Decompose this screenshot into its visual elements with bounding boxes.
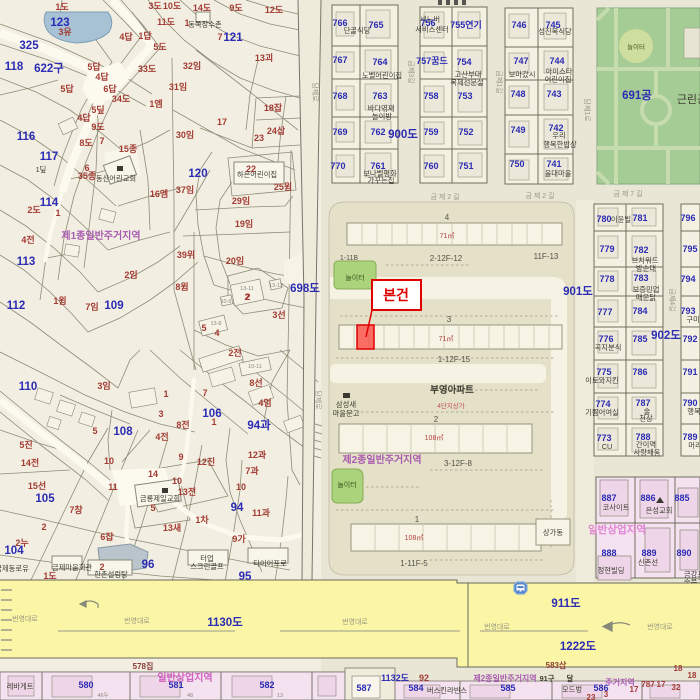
svg-text:108: 108 xyxy=(113,426,133,438)
svg-text:749: 749 xyxy=(510,125,525,135)
svg-text:5답: 5답 xyxy=(87,61,101,72)
svg-text:116: 116 xyxy=(17,131,36,143)
svg-text:587: 587 xyxy=(356,683,371,693)
svg-text:744: 744 xyxy=(549,56,564,66)
svg-text:단골식당: 단골식당 xyxy=(344,26,371,35)
svg-text:동산어린교회: 동산어린교회 xyxy=(96,174,136,183)
svg-text:34도: 34도 xyxy=(112,94,131,104)
svg-text:7: 7 xyxy=(217,32,222,42)
svg-text:113: 113 xyxy=(17,256,36,268)
svg-text:번영대로: 번영대로 xyxy=(12,614,38,623)
svg-text:제1종일반주거지역: 제1종일반주거지역 xyxy=(61,229,140,242)
svg-text:782: 782 xyxy=(633,245,648,255)
svg-text:10: 10 xyxy=(172,476,182,486)
svg-text:15선: 15선 xyxy=(28,480,46,491)
svg-text:885: 885 xyxy=(674,493,689,503)
svg-text:타이어프로: 타이어프로 xyxy=(253,559,287,568)
svg-text:4전: 4전 xyxy=(155,431,168,442)
svg-text:13전: 13전 xyxy=(178,486,196,497)
svg-text:691공: 691공 xyxy=(622,89,652,102)
svg-text:48: 48 xyxy=(187,693,193,699)
svg-text:751: 751 xyxy=(458,161,473,171)
svg-text:760: 760 xyxy=(423,161,438,171)
svg-text:108㎡: 108㎡ xyxy=(405,534,424,542)
svg-text:747: 747 xyxy=(513,56,528,66)
svg-text:13-8: 13-8 xyxy=(210,321,221,327)
svg-text:제2종일반주거지역: 제2종일반주거지역 xyxy=(473,673,536,683)
svg-text:770: 770 xyxy=(330,161,345,171)
svg-text:757꿈드: 757꿈드 xyxy=(416,56,448,66)
svg-text:번영대로: 번영대로 xyxy=(342,617,368,626)
svg-text:동쪽장수촌: 동쪽장수촌 xyxy=(188,20,222,29)
svg-text:놀이터: 놀이터 xyxy=(627,42,645,51)
svg-text:1130도: 1130도 xyxy=(207,616,243,629)
svg-text:어린이집: 어린이집 xyxy=(545,75,572,84)
svg-text:부영아파트: 부영아파트 xyxy=(430,384,474,396)
svg-text:10-9: 10-9 xyxy=(220,299,231,305)
svg-text:5도: 5도 xyxy=(153,42,167,52)
svg-text:우리: 우리 xyxy=(552,131,565,140)
svg-text:37임: 37임 xyxy=(176,184,194,195)
svg-text:8도: 8도 xyxy=(79,138,93,148)
svg-text:스크린골프: 스크린골프 xyxy=(190,562,224,571)
svg-text:금룡제일교회: 금룡제일교회 xyxy=(140,494,180,503)
svg-text:4답: 4답 xyxy=(119,31,133,42)
svg-text:758: 758 xyxy=(423,91,438,101)
svg-text:781: 781 xyxy=(632,213,647,223)
svg-text:6잡: 6잡 xyxy=(100,531,114,542)
svg-text:서비스센터: 서비스센터 xyxy=(415,25,449,34)
svg-text:가꾸는집: 가꾸는집 xyxy=(368,176,395,185)
svg-text:1222도: 1222도 xyxy=(560,640,597,653)
svg-text:코사이트: 코사이트 xyxy=(603,503,630,512)
svg-text:본건: 본건 xyxy=(383,287,409,303)
svg-text:792: 792 xyxy=(682,334,697,344)
svg-text:이토와지킨: 이토와지킨 xyxy=(585,376,619,385)
svg-text:매운닭: 매운닭 xyxy=(636,293,656,302)
svg-text:구미: 구미 xyxy=(686,315,699,324)
svg-text:32임: 32임 xyxy=(183,60,201,71)
svg-text:머리: 머리 xyxy=(688,441,700,450)
svg-text:성진복식당: 성진복식당 xyxy=(538,27,572,36)
svg-text:767: 767 xyxy=(332,55,347,65)
svg-text:버스킨라빈스: 버스킨라빈스 xyxy=(427,686,468,695)
svg-text:114: 114 xyxy=(40,197,59,209)
svg-text:1132도: 1132도 xyxy=(381,673,410,683)
svg-text:117: 117 xyxy=(40,151,59,163)
svg-text:1딮: 1딮 xyxy=(36,165,47,174)
svg-text:106: 106 xyxy=(202,408,221,420)
svg-text:8전: 8전 xyxy=(176,419,189,430)
svg-text:887: 887 xyxy=(601,493,616,503)
svg-text:886: 886 xyxy=(640,493,655,503)
svg-text:911도: 911도 xyxy=(551,597,581,610)
svg-text:18잡: 18잡 xyxy=(264,102,283,113)
svg-text:금제4길: 금제4길 xyxy=(668,288,676,311)
svg-text:번영대로: 번영대로 xyxy=(124,616,150,625)
svg-text:마을문고: 마을문고 xyxy=(333,409,360,418)
svg-text:24삽: 24삽 xyxy=(267,125,286,136)
svg-text:19임: 19임 xyxy=(235,218,253,229)
svg-text:764: 764 xyxy=(372,57,387,67)
svg-text:하은어린이집: 하은어린이집 xyxy=(237,170,277,179)
svg-text:4단지상가: 4단지상가 xyxy=(437,401,465,410)
svg-text:7과: 7과 xyxy=(245,465,259,476)
svg-text:14전: 14전 xyxy=(21,457,39,468)
svg-text:13: 13 xyxy=(277,693,283,699)
svg-text:3임: 3임 xyxy=(97,380,110,391)
svg-text:755연기: 755연기 xyxy=(450,19,482,30)
svg-text:13괴: 13괴 xyxy=(255,52,273,63)
svg-text:754: 754 xyxy=(456,57,471,67)
svg-text:4답: 4답 xyxy=(95,71,109,82)
svg-text:담제1로: 담제1로 xyxy=(583,98,592,122)
svg-text:325: 325 xyxy=(19,40,39,52)
svg-text:1: 1 xyxy=(415,515,420,524)
svg-text:4전: 4전 xyxy=(21,234,34,245)
svg-text:11F-13: 11F-13 xyxy=(534,252,559,261)
svg-text:금제3길: 금제3길 xyxy=(407,60,415,83)
svg-text:8선: 8선 xyxy=(249,377,262,388)
svg-text:울대마을: 울대마을 xyxy=(545,169,572,178)
svg-text:3도: 3도 xyxy=(148,1,162,11)
svg-text:제2종일반주거지역: 제2종일반주거지역 xyxy=(342,453,421,466)
svg-text:29임: 29임 xyxy=(232,195,250,206)
svg-text:71㎡: 71㎡ xyxy=(440,232,455,240)
svg-text:신촌선: 신촌선 xyxy=(638,558,658,567)
svg-text:778: 778 xyxy=(599,274,614,284)
svg-text:9도: 9도 xyxy=(229,3,243,13)
svg-text:786: 786 xyxy=(632,367,647,377)
svg-text:9가: 9가 xyxy=(232,533,246,544)
svg-text:902도: 902도 xyxy=(651,329,681,342)
svg-text:901도: 901도 xyxy=(563,285,593,298)
svg-text:11: 11 xyxy=(108,482,118,492)
svg-text:놀이터: 놀이터 xyxy=(345,273,364,282)
svg-text:104: 104 xyxy=(4,545,24,557)
svg-text:752: 752 xyxy=(458,127,473,137)
svg-text:777: 777 xyxy=(597,307,612,317)
svg-text:4: 4 xyxy=(214,328,219,338)
svg-text:방순대: 방순대 xyxy=(636,264,656,273)
svg-text:23: 23 xyxy=(254,133,264,143)
svg-text:121: 121 xyxy=(223,32,243,44)
svg-text:753: 753 xyxy=(457,91,472,101)
svg-text:놀이터: 놀이터 xyxy=(337,480,356,489)
svg-text:2전: 2전 xyxy=(228,347,241,358)
svg-text:13-12: 13-12 xyxy=(269,283,283,289)
svg-text:1도: 1도 xyxy=(55,2,69,12)
svg-text:785: 785 xyxy=(632,334,647,344)
svg-text:3: 3 xyxy=(447,315,452,324)
svg-text:4답: 4답 xyxy=(77,112,91,123)
svg-text:105: 105 xyxy=(35,493,55,505)
svg-text:23: 23 xyxy=(587,693,596,700)
svg-text:741: 741 xyxy=(546,159,561,169)
svg-text:791: 791 xyxy=(682,367,697,377)
svg-text:1답: 1답 xyxy=(138,30,152,41)
svg-text:108㎡: 108㎡ xyxy=(425,434,444,442)
svg-text:5답: 5답 xyxy=(60,83,74,94)
svg-text:정현빌딩: 정현빌딩 xyxy=(598,566,625,575)
svg-text:92: 92 xyxy=(419,673,429,683)
svg-text:2임: 2임 xyxy=(124,269,137,280)
svg-text:759: 759 xyxy=(423,127,438,137)
svg-text:6답: 6답 xyxy=(103,83,117,94)
svg-text:상가동: 상가동 xyxy=(543,528,563,537)
svg-text:번영대로: 번영대로 xyxy=(484,622,510,631)
svg-text:795: 795 xyxy=(682,244,697,254)
svg-text:7: 7 xyxy=(99,136,104,146)
svg-text:17: 17 xyxy=(630,685,639,694)
svg-text:768: 768 xyxy=(332,91,347,101)
svg-text:5: 5 xyxy=(201,323,206,333)
svg-text:이윤빌: 이윤빌 xyxy=(611,215,631,224)
svg-text:금 제 2 길: 금 제 2 길 xyxy=(430,193,459,201)
svg-text:17: 17 xyxy=(217,117,227,127)
svg-text:16엠: 16엠 xyxy=(150,188,168,199)
svg-text:레바게트: 레바게트 xyxy=(7,682,34,691)
svg-text:기쁨어여실: 기쁨어여실 xyxy=(585,408,619,417)
svg-text:32: 32 xyxy=(672,683,681,692)
svg-text:18: 18 xyxy=(688,671,697,680)
svg-text:1: 1 xyxy=(55,208,60,218)
svg-text:번영대로: 번영대로 xyxy=(647,622,673,631)
svg-text:모드벙: 모드벙 xyxy=(562,685,582,694)
svg-text:780: 780 xyxy=(596,214,611,224)
svg-text:580: 580 xyxy=(78,680,93,690)
svg-text:33도: 33도 xyxy=(138,64,157,74)
svg-text:5: 5 xyxy=(150,503,155,513)
svg-text:행복한밥상: 행복한밥상 xyxy=(543,140,577,149)
svg-text:20임: 20임 xyxy=(226,255,244,266)
svg-text:25윔: 25윔 xyxy=(274,181,292,192)
svg-text:8윔: 8윔 xyxy=(175,281,188,292)
svg-text:900도: 900도 xyxy=(388,128,418,141)
svg-text:743: 743 xyxy=(546,89,561,99)
svg-text:보마갔시: 보마갔시 xyxy=(509,70,536,79)
svg-text:일반상업지역: 일반상업지역 xyxy=(157,671,212,684)
svg-text:91구: 91구 xyxy=(540,674,555,683)
svg-text:787: 787 xyxy=(641,680,655,689)
svg-text:곡지분식: 곡지분식 xyxy=(595,343,622,352)
svg-text:7: 7 xyxy=(202,388,207,398)
svg-text:한촌설렁탕: 한촌설렁탕 xyxy=(94,570,128,579)
svg-text:15종: 15종 xyxy=(119,144,137,154)
svg-text:12도: 12도 xyxy=(265,5,284,15)
svg-text:14: 14 xyxy=(148,469,158,479)
svg-text:금제1길: 금제1길 xyxy=(495,70,503,93)
svg-text:46두: 46두 xyxy=(97,692,108,699)
svg-text:행복: 행복 xyxy=(687,407,700,416)
svg-text:17: 17 xyxy=(657,680,666,689)
svg-text:1: 1 xyxy=(163,389,168,399)
svg-text:31임: 31임 xyxy=(169,81,187,92)
svg-text:금 제 2 길: 금 제 2 길 xyxy=(525,192,554,200)
svg-text:담제로: 담제로 xyxy=(311,82,320,102)
svg-text:2: 2 xyxy=(41,522,46,532)
svg-text:35종: 35종 xyxy=(78,171,96,181)
svg-text:698도: 698도 xyxy=(290,282,320,295)
svg-text:583삽: 583삽 xyxy=(546,660,567,670)
svg-text:근린공: 근린공 xyxy=(677,93,700,106)
svg-text:담제로: 담제로 xyxy=(314,390,323,410)
svg-text:사랑채움: 사랑채움 xyxy=(634,448,661,457)
svg-text:2: 2 xyxy=(245,292,250,302)
svg-text:9: 9 xyxy=(178,452,183,462)
svg-text:746: 746 xyxy=(511,20,526,30)
svg-text:118: 118 xyxy=(5,61,24,73)
svg-text:놀이방: 놀이방 xyxy=(372,112,392,121)
svg-text:삼성새: 삼성새 xyxy=(336,400,356,409)
svg-text:천상: 천상 xyxy=(639,414,653,423)
svg-text:18: 18 xyxy=(674,664,683,673)
svg-text:96: 96 xyxy=(142,559,155,571)
svg-text:750: 750 xyxy=(509,159,524,169)
svg-text:783: 783 xyxy=(633,273,648,283)
svg-text:2: 2 xyxy=(434,415,439,424)
svg-text:584: 584 xyxy=(408,683,423,693)
svg-text:10: 10 xyxy=(104,456,114,466)
svg-text:94과: 94과 xyxy=(247,418,271,432)
svg-text:은성교회: 은성교회 xyxy=(646,506,673,515)
svg-text:1엠: 1엠 xyxy=(149,98,162,109)
svg-text:9도: 9도 xyxy=(91,122,105,132)
svg-text:11과: 11과 xyxy=(252,507,271,518)
svg-text:762: 762 xyxy=(370,127,385,137)
svg-text:109: 109 xyxy=(104,300,123,312)
svg-text:71㎡: 71㎡ xyxy=(439,335,454,343)
svg-text:585: 585 xyxy=(500,683,515,693)
svg-text:7창: 7창 xyxy=(69,504,83,515)
svg-text:5: 5 xyxy=(92,426,97,436)
svg-text:3선: 3선 xyxy=(272,309,285,320)
svg-text:13새: 13새 xyxy=(163,522,181,533)
svg-text:3: 3 xyxy=(158,409,163,419)
svg-text:일반상업지역: 일반상업지역 xyxy=(588,523,646,536)
svg-text:4: 4 xyxy=(445,213,450,222)
svg-text:784: 784 xyxy=(632,306,647,316)
svg-text:120: 120 xyxy=(188,168,207,180)
svg-text:금제동로유: 금제동로유 xyxy=(0,564,29,573)
svg-text:763: 763 xyxy=(372,91,387,101)
svg-text:123: 123 xyxy=(50,17,69,29)
svg-text:12진: 12진 xyxy=(197,456,215,467)
svg-text:1-12F-15: 1-12F-15 xyxy=(438,355,471,364)
svg-text:10도: 10도 xyxy=(163,1,182,11)
svg-text:890: 890 xyxy=(676,548,691,558)
svg-text:14도: 14도 xyxy=(193,3,212,13)
svg-text:794: 794 xyxy=(680,274,695,284)
svg-text:582: 582 xyxy=(259,680,274,690)
svg-text:94: 94 xyxy=(231,502,244,514)
svg-text:2-12F-12: 2-12F-12 xyxy=(430,254,463,263)
svg-text:39위: 39위 xyxy=(177,249,195,260)
svg-text:금 제 7 길: 금 제 7 길 xyxy=(613,190,642,198)
svg-text:889: 889 xyxy=(641,548,656,558)
svg-text:765: 765 xyxy=(368,20,383,30)
svg-text:7임: 7임 xyxy=(85,301,98,312)
svg-text:11도: 11도 xyxy=(157,17,176,27)
svg-text:금제마을회관: 금제마을회관 xyxy=(52,563,93,572)
svg-text:CU: CU xyxy=(602,442,613,451)
svg-text:복제선문설: 복제선문설 xyxy=(450,78,484,87)
svg-text:10: 10 xyxy=(236,482,246,492)
svg-text:748: 748 xyxy=(510,89,525,99)
svg-text:10-11: 10-11 xyxy=(248,364,262,370)
svg-text:110: 110 xyxy=(19,381,38,393)
svg-text:1-11F-5: 1-11F-5 xyxy=(400,559,428,568)
svg-text:112: 112 xyxy=(7,300,26,312)
svg-text:5딮: 5딮 xyxy=(91,104,104,115)
svg-text:1윔: 1윔 xyxy=(53,295,66,306)
svg-text:622구: 622구 xyxy=(34,62,64,75)
svg-text:4엄: 4엄 xyxy=(258,397,271,408)
svg-text:1차: 1차 xyxy=(195,514,209,525)
svg-text:888: 888 xyxy=(601,548,616,558)
svg-text:769: 769 xyxy=(332,127,347,137)
svg-text:3: 3 xyxy=(604,690,609,699)
svg-text:노벨어린이집: 노벨어린이집 xyxy=(362,71,402,80)
svg-text:5진: 5진 xyxy=(19,439,32,450)
svg-text:12과: 12과 xyxy=(248,449,267,460)
svg-text:달: 달 xyxy=(567,674,574,683)
svg-text:779: 779 xyxy=(599,244,614,254)
svg-text:30임: 30임 xyxy=(176,129,194,140)
svg-text:796: 796 xyxy=(680,213,695,223)
svg-text:578집: 578집 xyxy=(133,661,154,671)
svg-text:3-12F-8: 3-12F-8 xyxy=(444,459,473,468)
